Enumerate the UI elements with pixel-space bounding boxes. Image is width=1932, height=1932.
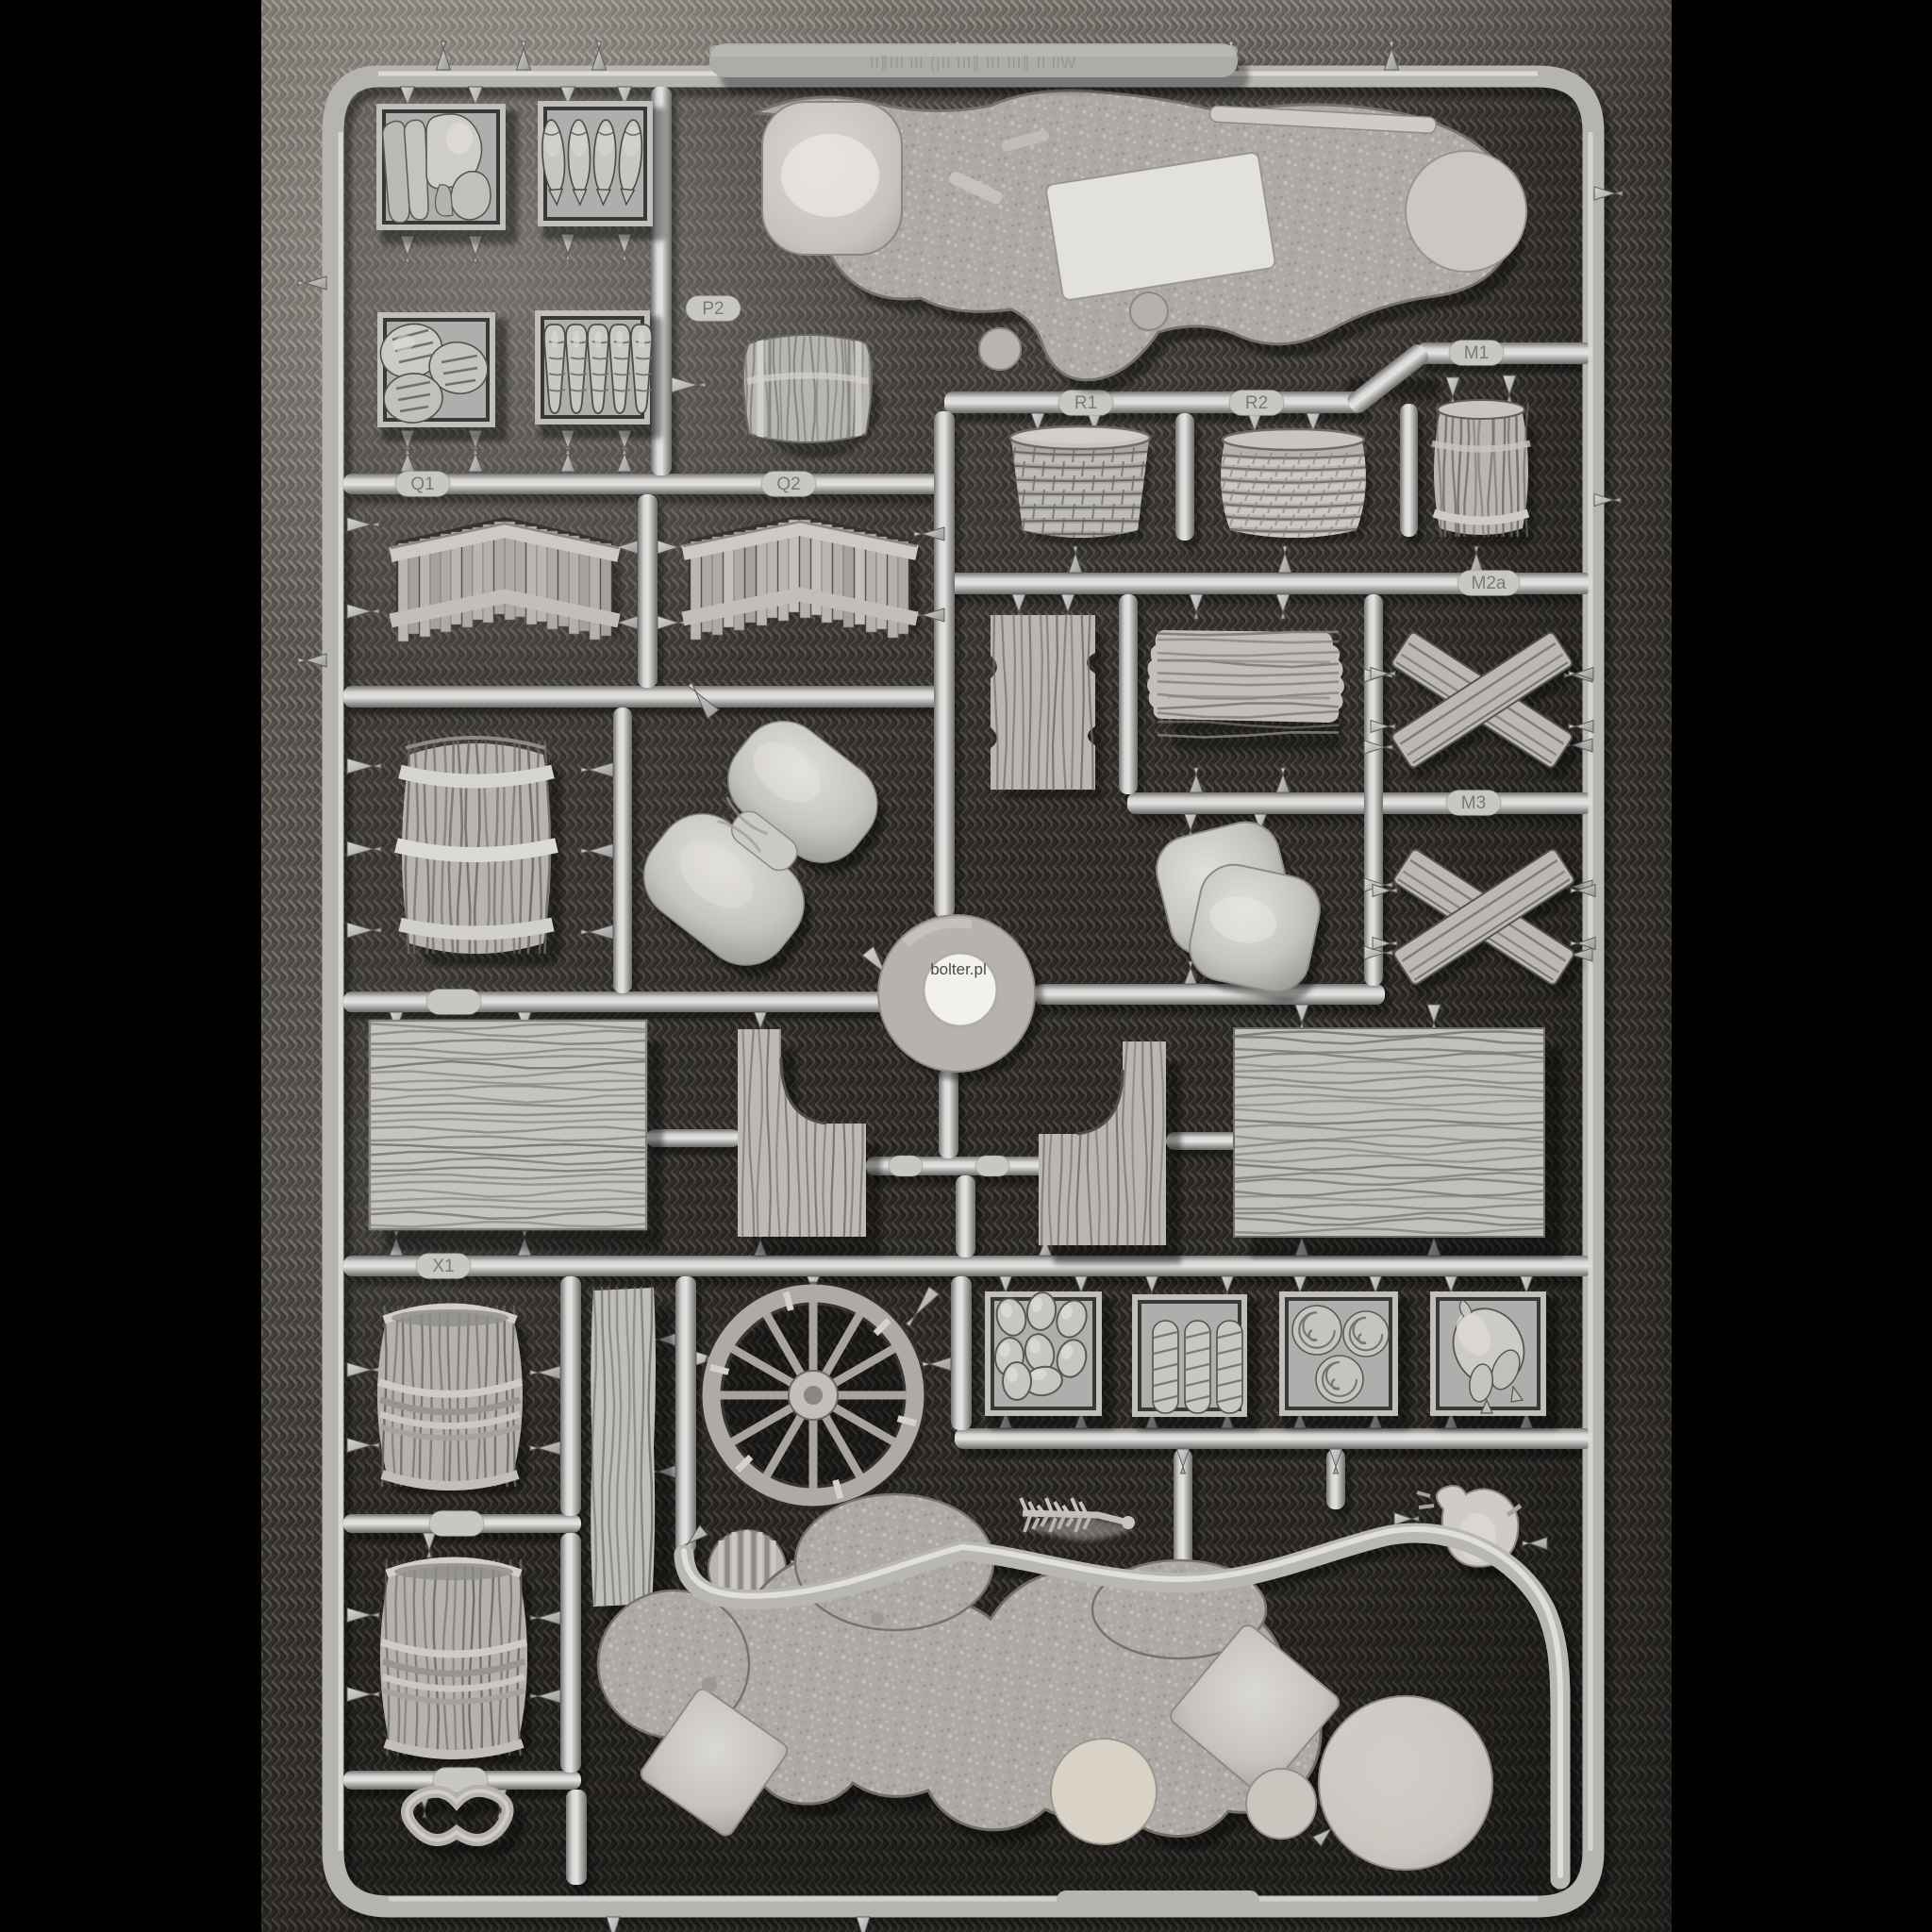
svg-text:R1: R1 <box>1074 393 1097 413</box>
svg-text:lI∥IIl llI {|Il IIl∥ lII IlI∥: lI∥IIl llI {|Il IIl∥ lII IlI∥ Il llW <box>871 54 1077 72</box>
svg-text:M3: M3 <box>1461 793 1486 813</box>
svg-text:bolter.pl: bolter.pl <box>930 960 987 978</box>
svg-text:Q2: Q2 <box>776 475 800 494</box>
svg-text:Q1: Q1 <box>410 475 434 494</box>
svg-text:X1: X1 <box>432 1257 454 1276</box>
svg-text:R2: R2 <box>1245 393 1268 413</box>
svg-text:M1: M1 <box>1464 343 1489 363</box>
svg-text:M2a: M2a <box>1472 574 1507 593</box>
svg-text:P2: P2 <box>702 299 724 319</box>
